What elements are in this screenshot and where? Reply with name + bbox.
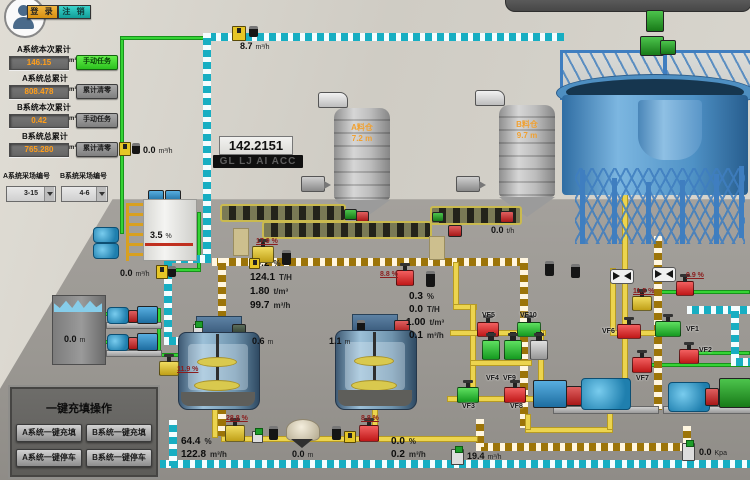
a-manual-task-button[interactable]: 手动任务 <box>76 55 118 70</box>
b-reset-total-button[interactable]: 累计清零 <box>76 142 118 157</box>
silo-a-blower-icon[interactable] <box>318 92 348 108</box>
collecting-conveyor-motor[interactable] <box>448 225 462 237</box>
discharge-sensor-3-icon <box>332 426 341 440</box>
water-pump-2[interactable] <box>107 334 129 351</box>
pipe-green-right-1 <box>658 290 750 294</box>
thickener-hoist-motor[interactable] <box>646 10 664 32</box>
pressure-readout: 0.0Kpa <box>699 447 727 457</box>
pipe-fill-pump-loop-v1 <box>525 414 531 430</box>
water-pump-1[interactable] <box>107 307 129 324</box>
water-pump-2-motor[interactable] <box>137 333 158 351</box>
mixer-a-out-gauge: 28.8 % <box>226 415 248 422</box>
pipe-fill-manifold-vertical <box>470 304 476 400</box>
valve-vf1-label: VF1 <box>686 326 699 333</box>
pipe-water-bottom-main <box>58 460 750 468</box>
mixer-a-propeller-1 <box>198 358 236 366</box>
additive-tank-level-bar <box>145 243 193 246</box>
b-site-number-select[interactable]: 4-6 <box>61 186 108 202</box>
b-grand-total-field[interactable]: 765.280 <box>9 143 69 157</box>
chevron-down-icon[interactable] <box>96 187 106 201</box>
pipe-water-right-stub <box>731 358 750 366</box>
thickener-leg <box>612 178 617 244</box>
collecting-conveyor[interactable] <box>262 221 432 239</box>
totalizer-display: 142.2151 <box>219 136 293 155</box>
silo-a-name: A料仓 <box>334 122 390 133</box>
thickener-leg <box>739 166 744 238</box>
a-current-total-label: A系统本次累计 <box>17 44 71 55</box>
fill-pump-a-motor[interactable] <box>533 380 567 408</box>
fill-line-flow: 122.8m³/h <box>181 449 227 460</box>
pipe-green-top <box>120 36 208 40</box>
valve-vf7-label: VF7 <box>636 375 649 382</box>
a-one-key-fill-button[interactable]: A系统一键充填 <box>16 424 82 442</box>
a-current-total-field[interactable]: 146.15 <box>9 56 69 70</box>
mid-sensor-2-icon <box>571 264 580 278</box>
water-pump-base-2 <box>106 350 162 357</box>
valve-vf8-label: VF8 <box>510 403 523 410</box>
density-meter-icon <box>282 250 291 265</box>
underflow-butterfly-valve-2[interactable] <box>652 267 676 282</box>
dosing-flow-readout: 0.0m³/h <box>143 145 173 155</box>
login-button[interactable]: 登 录 <box>27 5 58 19</box>
overflow-gauge: 0.9 % <box>686 272 704 279</box>
thickener-drive-motor-2[interactable] <box>660 40 676 55</box>
a-site-number-label: A系统采场编号 <box>3 171 50 181</box>
b-one-key-fill-button[interactable]: B系统一键充填 <box>86 424 152 442</box>
water-tank-level-readout: 0.0m <box>64 334 85 344</box>
pipe-fill-pump-loop-h <box>525 427 613 433</box>
water-line-valve[interactable] <box>159 361 179 376</box>
hopper-level-readout: 0.0m <box>292 449 313 459</box>
flow-meter-icon[interactable] <box>232 26 246 41</box>
line-lock-icon <box>249 258 260 269</box>
silo-b-name: B料仓 <box>499 119 555 130</box>
a-one-key-stop-button[interactable]: A系统一键停车 <box>16 449 82 467</box>
valve-vf1[interactable] <box>655 321 681 337</box>
pipe-water-top-horizontal <box>204 33 564 41</box>
feed-line-gauge: 17.9 % <box>256 238 278 245</box>
top-right-collapsed-bar[interactable] <box>505 0 750 12</box>
line-a-tonnage: 124.1T/H <box>250 272 292 283</box>
scada-filling-station-screen: 登 录 注 销 A系统本次累计 146.15 m³ 手动任务 A系统总累计 80… <box>0 0 750 480</box>
mixer-a-out-valve[interactable] <box>225 425 245 442</box>
pipe-fill-manifold-row2 <box>470 360 532 366</box>
dosing-pump-2[interactable] <box>93 243 119 259</box>
b-manual-task-button[interactable]: 手动任务 <box>76 113 118 128</box>
valve-vf2-label: VF2 <box>699 347 712 354</box>
valve-vf3-label: VF3 <box>462 403 475 410</box>
line-b-concentration: 0.3% <box>409 291 434 302</box>
mid-sensor-1-icon <box>545 261 554 276</box>
underflow-butterfly-valve-1[interactable] <box>610 269 634 284</box>
silo-b-blower-icon[interactable] <box>475 90 505 106</box>
underflow-control-valve[interactable] <box>632 296 652 311</box>
valve-vf10-label: VF10 <box>520 312 537 319</box>
mixer-b-out-gauge: 8.8 % <box>361 415 379 422</box>
mixer-a-slurry <box>181 392 255 406</box>
a-reset-total-button[interactable]: 累计清零 <box>76 84 118 99</box>
discharge-hopper[interactable] <box>286 419 320 441</box>
fill-pump-a[interactable] <box>581 378 631 410</box>
slurry-a-meter-icon <box>426 271 435 287</box>
b-site-number-label: B系统采场编号 <box>60 171 107 181</box>
pipe-water-fill-riser <box>169 420 177 466</box>
valve-vf2[interactable] <box>679 349 699 364</box>
b-line-flow: 0.2m³/h <box>391 449 426 460</box>
pipe-slurry-bottom-riser-1 <box>476 419 484 447</box>
discharge-sensor-2-icon <box>269 426 278 440</box>
water-pump-1-motor[interactable] <box>137 306 158 324</box>
discharge-hopper-cone <box>291 439 313 448</box>
mixer-b-out-valve[interactable] <box>359 425 379 442</box>
b-line-concentration: 0.0% <box>391 436 416 447</box>
underflow-gauge: 11.5 % <box>633 288 654 295</box>
b-site-number-value: 4-6 <box>79 190 89 197</box>
valve-vf9[interactable] <box>504 340 522 360</box>
conveyor-support-right <box>429 236 445 260</box>
dosing-gauge-icon <box>132 143 140 154</box>
line-a-flow: 99.7m³/h <box>250 300 290 311</box>
pipe-water-right-v <box>731 306 739 366</box>
line-b-density: 1.00t/m³ <box>406 317 444 328</box>
valve-vf7[interactable] <box>632 357 652 373</box>
valve-vf6-label: VF6 <box>602 328 615 335</box>
slurry-a-valve[interactable] <box>396 270 414 286</box>
thickener-leg <box>714 174 719 244</box>
mixer-b-level-readout: 1.1m <box>329 336 350 346</box>
top-flow-readout: 8.7m³/h <box>240 41 270 51</box>
one-key-panel-title: 一键充填操作 <box>46 400 112 416</box>
pipe-fill-manifold-feed <box>453 262 459 310</box>
b-current-total-field[interactable]: 0.42 <box>9 114 69 128</box>
fill-flow-readout: 19.4m³/h <box>467 451 502 461</box>
mixer-b-slurry <box>338 390 412 406</box>
line-b-tonnage: 0.0T/H <box>409 304 440 315</box>
silo-b-aerator-icon[interactable] <box>456 176 480 192</box>
thickener-leg <box>580 170 585 244</box>
code-bar[interactable]: GL LJ AI ACC <box>213 155 303 168</box>
overflow-valve[interactable] <box>676 281 694 296</box>
additive-tank-level-readout: 3.5% <box>150 230 172 240</box>
valve-vf5-label: VF5 <box>482 312 495 319</box>
mixer-b-propeller-2 <box>352 381 396 390</box>
thickener-leg <box>680 180 685 244</box>
discharge-sensor-4-icon <box>344 431 356 443</box>
silo-b-level: 9.7 m <box>499 131 555 140</box>
feeder-b-rate-readout: 0.0t/h <box>491 225 514 235</box>
water-line-gauge: 11.9 % <box>177 366 198 373</box>
a-site-number-select[interactable]: 3-15 <box>6 186 56 202</box>
pipe-slurry-bottom-horizontal <box>476 443 691 451</box>
silo-a-aerator-icon[interactable] <box>301 176 325 192</box>
thickener-feedwell <box>638 100 702 160</box>
feeder-b-motor-red[interactable] <box>500 211 514 223</box>
slurry-a-gauge: 8.8 % <box>380 271 398 278</box>
fill-pump-a-coupling <box>566 386 582 406</box>
valve-vf4-label: VF4 <box>486 375 499 382</box>
fill-flow-meter-icon[interactable] <box>451 449 464 465</box>
dosing-flow-2-readout: 0.0m³/h <box>120 268 150 278</box>
dosing-pump-1[interactable] <box>93 227 119 243</box>
mixer-b-propeller-1 <box>355 357 393 365</box>
pipe-water-left-vertical <box>203 33 211 261</box>
b-current-total-label: B系统本次累计 <box>17 102 71 113</box>
thickener-support-lattice <box>575 168 745 244</box>
discharge-sensor-1-icon <box>252 431 263 443</box>
flow-gauge-icon <box>249 26 258 37</box>
pipe-water-right-h <box>687 306 750 314</box>
spare-actuator-valve[interactable] <box>530 340 548 360</box>
b-grand-total-label: B系统总累计 <box>22 131 68 142</box>
a-grand-total-label: A系统总累计 <box>22 73 68 84</box>
mixer-a-propeller-2 <box>195 381 239 390</box>
fill-pump-b-coupling <box>705 388 719 406</box>
chevron-down-icon[interactable] <box>44 187 54 201</box>
logout-button[interactable]: 注 销 <box>58 5 91 19</box>
feeder-b-motor-green[interactable] <box>432 212 444 222</box>
conveyor-support-left <box>233 228 249 256</box>
thickener-leg <box>646 182 651 244</box>
mixer-a-level-readout: 0.6m <box>252 336 273 346</box>
screw-feeder-a[interactable] <box>220 204 346 222</box>
valve-vf6[interactable] <box>617 324 641 339</box>
valve-vf4[interactable] <box>482 340 500 360</box>
pipe-green-left-vertical <box>120 36 124 234</box>
fill-line-concentration: 64.4% <box>181 436 212 447</box>
line-b-flow: 0.1m³/h <box>409 330 444 341</box>
pressure-sensor-icon[interactable] <box>682 443 695 461</box>
a-site-number-value: 3-15 <box>24 190 38 197</box>
dosing-flow-meter-icon[interactable] <box>119 142 131 156</box>
silo-a-level: 7.2 m <box>334 134 390 143</box>
fill-pump-b[interactable] <box>668 382 710 412</box>
dosing-gauge-2-icon <box>168 266 176 277</box>
b-one-key-stop-button[interactable]: B系统一键停车 <box>86 449 152 467</box>
dosing-flow-meter-2-icon[interactable] <box>156 265 168 279</box>
valve-vf3[interactable] <box>457 387 479 403</box>
fill-pump-b-motor[interactable] <box>719 378 750 408</box>
a-grand-total-field[interactable]: 808.478 <box>9 85 69 99</box>
valve-vf8[interactable] <box>504 387 526 403</box>
line-a-density: 1.80t/m³ <box>250 286 288 297</box>
